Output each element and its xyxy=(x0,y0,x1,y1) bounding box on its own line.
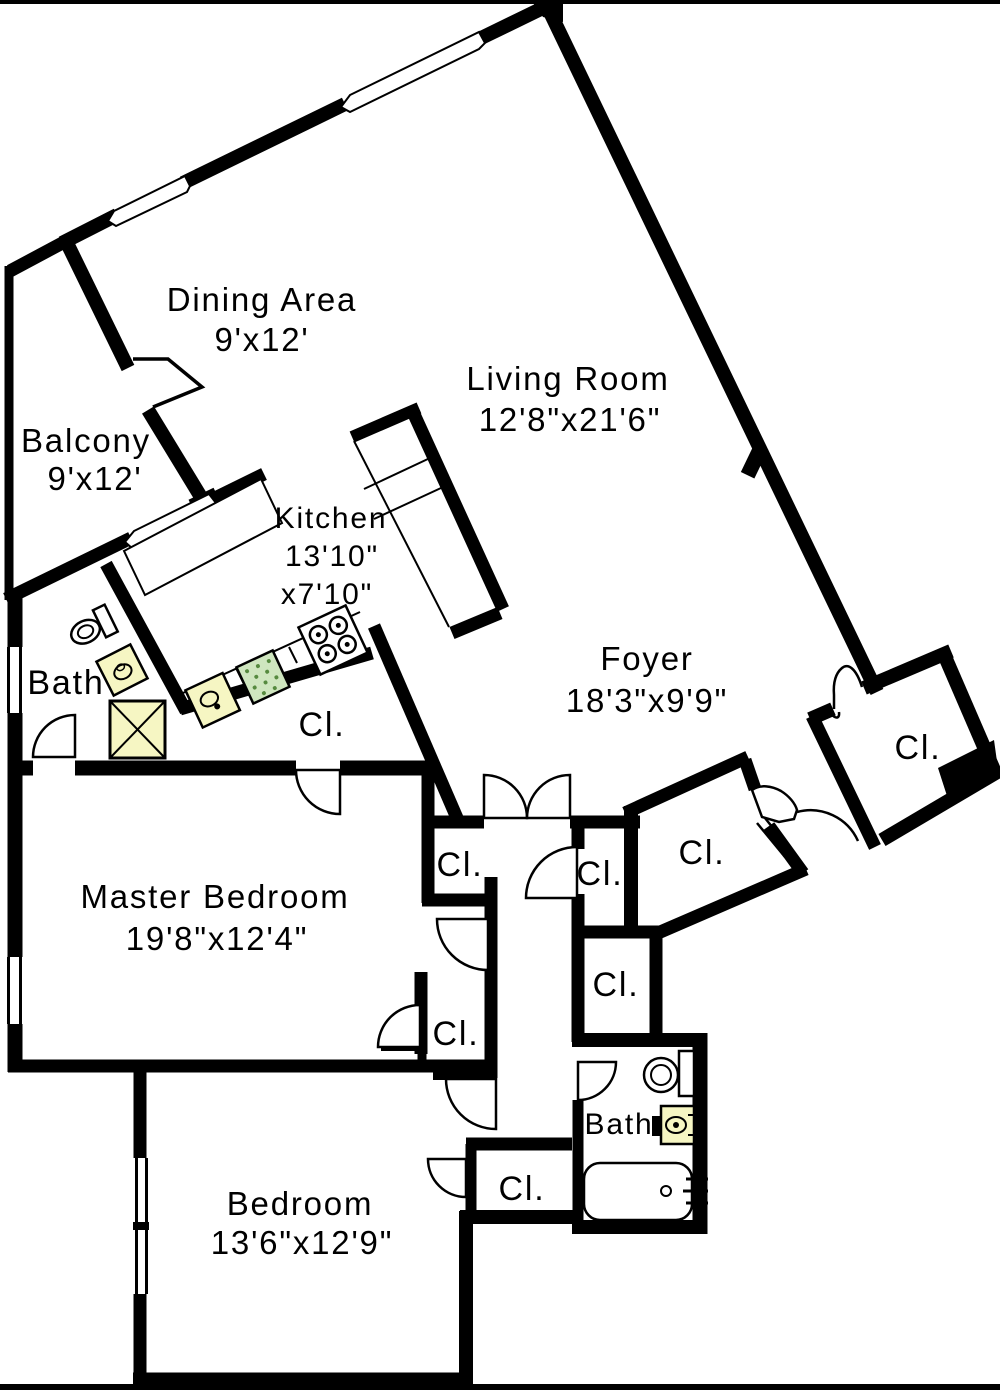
svg-text:Bedroom: Bedroom xyxy=(227,1185,374,1222)
svg-text:Cl.: Cl. xyxy=(577,855,624,893)
svg-text:18'3"x9'9": 18'3"x9'9" xyxy=(566,682,728,719)
svg-text:x7'10": x7'10" xyxy=(281,578,373,611)
svg-text:9'x12': 9'x12' xyxy=(215,321,310,358)
svg-text:Kitchen: Kitchen xyxy=(275,502,388,535)
svg-text:Cl.: Cl. xyxy=(433,1015,480,1053)
svg-text:Foyer: Foyer xyxy=(600,640,693,677)
svg-text:Cl.: Cl. xyxy=(299,706,346,744)
svg-text:19'8"x12'4": 19'8"x12'4" xyxy=(126,920,308,957)
svg-text:Master Bedroom: Master Bedroom xyxy=(80,878,349,915)
svg-text:Bath: Bath xyxy=(27,664,104,702)
svg-text:13'6"x12'9": 13'6"x12'9" xyxy=(211,1224,393,1261)
svg-text:Dining Area: Dining Area xyxy=(167,281,357,318)
svg-text:Cl.: Cl. xyxy=(679,834,726,872)
svg-text:13'10": 13'10" xyxy=(285,540,379,573)
svg-text:Cl.: Cl. xyxy=(895,729,942,767)
svg-text:Bath: Bath xyxy=(585,1108,654,1141)
svg-text:Cl.: Cl. xyxy=(499,1170,546,1208)
svg-text:9'x12': 9'x12' xyxy=(48,460,143,497)
svg-text:12'8"x21'6": 12'8"x21'6" xyxy=(479,401,661,438)
svg-text:Living Room: Living Room xyxy=(466,360,669,397)
svg-text:Cl.: Cl. xyxy=(593,966,640,1004)
svg-text:Balcony: Balcony xyxy=(21,422,151,459)
svg-text:Cl.: Cl. xyxy=(437,846,484,884)
